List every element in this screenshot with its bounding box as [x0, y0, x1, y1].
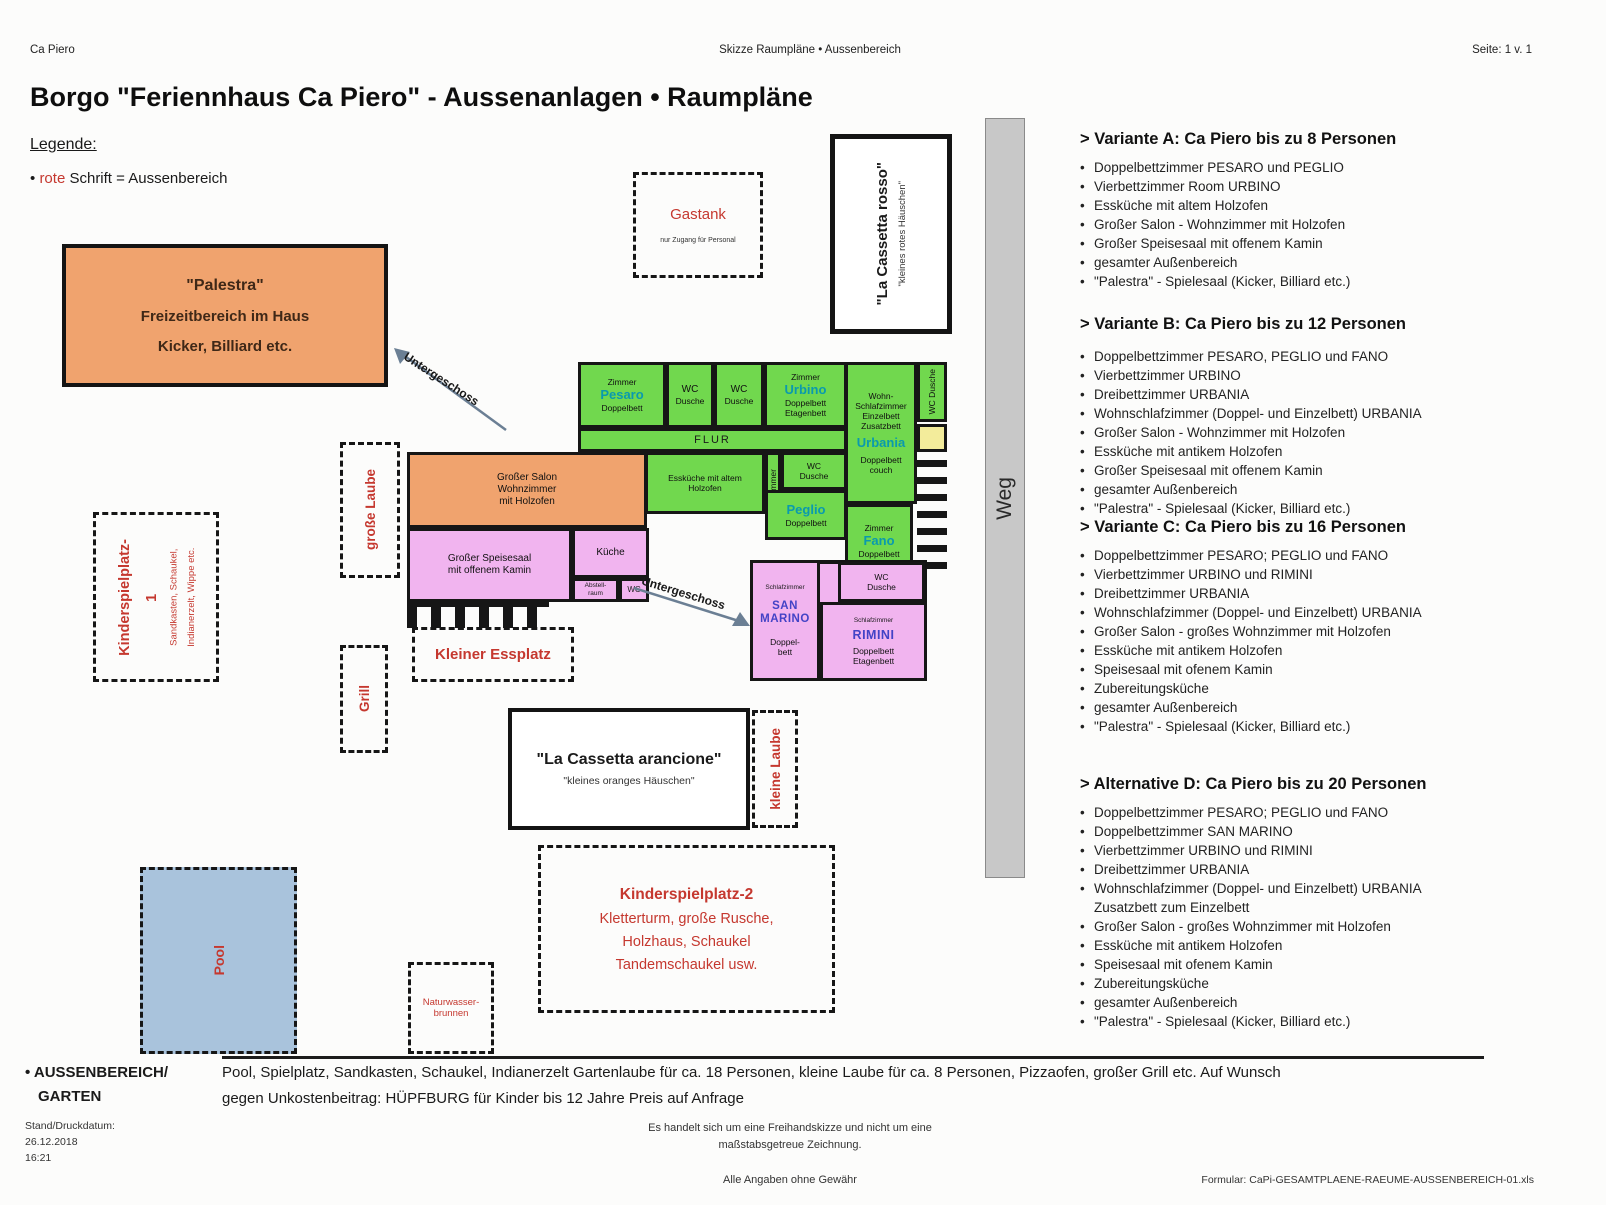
- formular-reference: Formular: CaPi-GESAMTPLAENE-RAEUME-AUSSE…: [1090, 1172, 1534, 1188]
- variant-item-text: Speisesaal mit ofenem Kamin: [1094, 955, 1273, 974]
- kinderspielplatz-2-line: Holzhaus, Schaukel: [622, 934, 750, 950]
- variant-list-item: • Großer Salon - großes Wohnzimmer mit H…: [1080, 622, 1590, 641]
- room-name: Urbino: [785, 382, 827, 397]
- variant-item-text: Speisesaal mit ofenem Kamin: [1094, 660, 1273, 679]
- disclaimer: Alle Angaben ohne Gewähr: [600, 1172, 980, 1188]
- print-date-block: Stand/Druckdatum: 26.12.2018 16:21: [25, 1118, 115, 1166]
- bullet: •: [1080, 1012, 1094, 1031]
- bed-label: Doppelbett: [785, 518, 826, 528]
- kinderspielplatz-2-title: Kinderspielplatz-2: [620, 886, 754, 904]
- kinderspielplatz-1-label: Kinderspielplatz- 1 Sandkasten, Schaukel…: [112, 539, 201, 656]
- kinderspielplatz-2-line: Kletterturm, große Rusche,: [599, 911, 773, 927]
- room-type-label: Zimmer: [791, 372, 820, 382]
- bullet: •: [1080, 480, 1094, 499]
- room-name: RIMINI: [853, 628, 895, 643]
- bullet: •: [1080, 717, 1094, 736]
- cassetta-rosso-title: "La Cassetta rosso": [874, 162, 891, 305]
- variant-item-text: Großer Salon - großes Wohnzimmer mit Hol…: [1094, 622, 1391, 641]
- brunnen-label: Naturwasser-: [423, 997, 480, 1008]
- variant-list-item: • Wohnschlafzimmer (Doppel- und Einzelbe…: [1080, 404, 1590, 423]
- dusche-label: Dusche: [867, 582, 896, 592]
- bullet: •: [1080, 234, 1094, 253]
- variant-item-text: gesamter Außenbereich: [1094, 993, 1237, 1012]
- variant-list-item: Zusatzbett zum Einzelbett: [1080, 898, 1590, 917]
- footer-rule: [222, 1056, 1484, 1059]
- variant-item-text: Doppelbettzimmer PESARO; PEGLIO und FANO: [1094, 803, 1388, 822]
- bullet: •: [1080, 860, 1094, 879]
- bullet: •: [1080, 955, 1094, 974]
- variant-a-title: > Variante A: Ca Piero bis zu 8 Personen: [1080, 130, 1590, 149]
- palestra-line2: Freizeitbereich im Haus: [141, 308, 309, 325]
- variant-list-item: • Vierbettzimmer URBINO und RIMINI: [1080, 565, 1590, 584]
- variant-list-item: • Doppelbettzimmer SAN MARINO: [1080, 822, 1590, 841]
- room-san-marino: Schlafzimmer SAN MARINO Doppel- bett: [750, 560, 820, 681]
- wc-label: WC: [731, 384, 748, 396]
- variant-item-text: Vierbettzimmer URBINO und RIMINI: [1094, 841, 1313, 860]
- bed-label: Doppel-: [770, 637, 800, 647]
- variant-list-item: • Dreibettzimmer URBANIA: [1080, 584, 1590, 603]
- brunnen-label: brunnen: [434, 1008, 469, 1019]
- flur-label: FLUR: [694, 434, 731, 447]
- room-kueche: Küche: [572, 528, 649, 578]
- bullet: •: [1080, 253, 1094, 272]
- variant-c-list: • Doppelbettzimmer PESARO; PEGLIO und FA…: [1080, 546, 1590, 736]
- room-type-label: Essküche mit altem: [668, 473, 742, 483]
- palestra-title: "Palestra": [186, 277, 263, 295]
- variant-list-item: • "Palestra" - Spielesaal (Kicker, Billi…: [1080, 272, 1590, 291]
- variant-list-item: • "Palestra" - Spielesaal (Kicker, Billi…: [1080, 717, 1590, 736]
- stairs-hatch: [917, 460, 947, 576]
- palestra-area: "Palestra" Freizeitbereich im Haus Kicke…: [62, 244, 388, 387]
- bullet: •: [1080, 603, 1094, 622]
- variant-item-text: Essküche mit antikem Holzofen: [1094, 641, 1282, 660]
- variant-item-text: Wohnschlafzimmer (Doppel- und Einzelbett…: [1094, 603, 1422, 622]
- bullet: •: [1080, 641, 1094, 660]
- variant-list-item: • gesamter Außenbereich: [1080, 253, 1590, 272]
- weg-label: Weg: [993, 477, 1017, 520]
- weg-path: Weg: [985, 118, 1025, 878]
- bed-label: Einzelbett: [862, 411, 899, 421]
- bullet: •: [1080, 196, 1094, 215]
- variant-item-text: Vierbettzimmer Room URBINO: [1094, 177, 1281, 196]
- variant-list-item: • Essküche mit antikem Holzofen: [1080, 936, 1590, 955]
- bullet: •: [1080, 974, 1094, 993]
- variant-list-item: • Doppelbettzimmer PESARO; PEGLIO und FA…: [1080, 546, 1590, 565]
- variant-item-text: Zubereitungsküche: [1094, 679, 1209, 698]
- bullet: •: [1080, 499, 1094, 518]
- bed-label: Doppelbett: [858, 549, 899, 559]
- bullet: •: [1080, 698, 1094, 717]
- room-type-label: Wohnzimmer: [498, 484, 557, 496]
- variant-list-item: • Doppelbettzimmer PESARO, PEGLIO und FA…: [1080, 347, 1590, 366]
- variant-item-text: Doppelbettzimmer PESARO und PEGLIO: [1094, 158, 1344, 177]
- room-wc-a: WC Dusche: [666, 362, 714, 428]
- variant-list-item: • Wohnschlafzimmer (Doppel- und Einzelbe…: [1080, 603, 1590, 622]
- bed-label: Etagenbett: [853, 656, 894, 666]
- variant-list-item: • gesamter Außenbereich: [1080, 993, 1590, 1012]
- room-type-label: mit offenem Kamin: [448, 565, 531, 577]
- room-wc-small: WC Dusche: [781, 452, 847, 490]
- variant-list-item: • Zubereitungsküche: [1080, 679, 1590, 698]
- legend-rest: Schrift = Aussenbereich: [69, 170, 227, 187]
- room-type-label: Abstell-: [585, 582, 607, 590]
- legend-line: • rote Schrift = Aussenbereich: [30, 170, 227, 187]
- dusche-label: Dusche: [676, 396, 705, 406]
- legend-red-word: rote: [39, 170, 65, 187]
- page-title: Borgo "Feriennhaus Ca Piero" - Aussenanl…: [30, 82, 813, 113]
- legend-heading: Legende:: [30, 136, 97, 154]
- kinderspielplatz-2-area: Kinderspielplatz-2 Kletterturm, große Ru…: [538, 845, 835, 1013]
- bullet: •: [1080, 841, 1094, 860]
- bullet: •: [1080, 272, 1094, 291]
- grosse-laube-area: große Laube: [340, 442, 400, 578]
- variant-item-text: Essküche mit altem Holzofen: [1094, 196, 1268, 215]
- room-wc-b: WC Dusche: [714, 362, 764, 428]
- variant-item-text: Zusatzbett zum Einzelbett: [1094, 898, 1249, 917]
- room-type-label: Schlafzimmer: [854, 617, 893, 625]
- variant-list-item: • Großer Speisesaal mit offenem Kamin: [1080, 234, 1590, 253]
- bed-label: Doppelbett: [785, 398, 826, 408]
- variant-item-text: gesamter Außenbereich: [1094, 253, 1237, 272]
- print-date-value: 26.12.2018: [25, 1134, 115, 1150]
- pool-label: Pool: [211, 945, 227, 975]
- bullet: •: [1080, 565, 1094, 584]
- bullet: •: [1080, 347, 1094, 366]
- bullet: •: [1080, 622, 1094, 641]
- room-type-label: Schlafzimmer: [765, 584, 804, 592]
- stairs-comb: [407, 602, 549, 628]
- room-type-label: Holzofen: [688, 483, 722, 493]
- kleine-laube-label: kleine Laube: [768, 728, 783, 810]
- variant-item-text: Doppelbettzimmer SAN MARINO: [1094, 822, 1293, 841]
- room-type-label: Großer Salon: [497, 472, 557, 484]
- room-type-label: mit Holzofen: [499, 496, 555, 508]
- variant-list-item: • Dreibettzimmer URBANIA: [1080, 385, 1590, 404]
- kinderspielplatz-1-sub: Sandkasten, Schaukel,: [165, 539, 183, 656]
- variant-list-item: • Essküche mit antikem Holzofen: [1080, 641, 1590, 660]
- bullet: [1080, 898, 1094, 917]
- bullet: •: [1080, 679, 1094, 698]
- bed-label: Zusatzbett: [861, 421, 901, 431]
- pool-area: Pool: [140, 867, 297, 1054]
- naturwasserbrunnen-area: Naturwasser- brunnen: [408, 962, 494, 1054]
- bullet: •: [1080, 385, 1094, 404]
- aussenbereich-desc-1: Pool, Spielplatz, Sandkasten, Schaukel, …: [222, 1064, 1512, 1081]
- bullet: •: [1080, 404, 1094, 423]
- variant-list-item: • Doppelbettzimmer PESARO und PEGLIO: [1080, 158, 1590, 177]
- variant-item-text: "Palestra" - Spielesaal (Kicker, Billiar…: [1094, 272, 1350, 291]
- variant-item-text: Großer Speisesaal mit offenem Kamin: [1094, 234, 1323, 253]
- cassetta-arancione-subtitle: "kleines oranges Häuschen": [563, 775, 694, 787]
- room-grosser-salon: Großer Salon Wohnzimmer mit Holzofen: [407, 452, 647, 528]
- room-urbino: Zimmer Urbino Doppelbett Etagenbett: [764, 362, 847, 428]
- variant-list-item: • Dreibettzimmer URBANIA: [1080, 860, 1590, 879]
- bullet: •: [1080, 423, 1094, 442]
- bed-label: bett: [778, 647, 792, 657]
- print-date-label: Stand/Druckdatum:: [25, 1118, 115, 1134]
- bullet: •: [1080, 215, 1094, 234]
- room-urbania: Wohn- Schlafzimmer Einzelbett Zusatzbett…: [845, 362, 917, 504]
- gastank-note: nur Zugang für Personal: [660, 237, 736, 244]
- header-page-number: Seite: 1 v. 1: [1390, 44, 1532, 56]
- bullet: •: [1080, 822, 1094, 841]
- variant-list-item: • Großer Speisesaal mit offenem Kamin: [1080, 461, 1590, 480]
- wc-label: WC Dusche: [927, 369, 937, 414]
- garten-label: GARTEN: [38, 1088, 101, 1105]
- cassetta-rosso-area: "La Cassetta rosso" "kleines rotes Häusc…: [830, 134, 952, 334]
- plan-yellow-cell: [917, 424, 947, 452]
- room-abstellraum: Abstell- raum: [572, 578, 619, 602]
- alternative-d-list: • Doppelbettzimmer PESARO; PEGLIO und FA…: [1080, 803, 1590, 1031]
- room-pesaro: Zimmer Pesaro Doppelbett: [578, 362, 666, 428]
- variant-list-item: • Wohnschlafzimmer (Doppel- und Einzelbe…: [1080, 879, 1590, 898]
- room-name: Pesaro: [600, 387, 643, 402]
- variant-list-item: • Speisesaal mit ofenem Kamin: [1080, 660, 1590, 679]
- variant-item-text: Vierbettzimmer URBINO: [1094, 366, 1241, 385]
- kinderspielplatz-1-number: 1: [138, 539, 165, 656]
- bed-label: Doppelbett couch: [848, 455, 914, 475]
- gastank-area: Gastank nur Zugang für Personal: [633, 172, 763, 278]
- dusche-label: Dusche: [725, 396, 754, 406]
- variant-a-section: > Variante A: Ca Piero bis zu 8 Personen…: [1080, 130, 1590, 291]
- dusche-label: Dusche: [800, 471, 829, 481]
- room-rimini: Schlafzimmer RIMINI Doppelbett Etagenbet…: [820, 602, 927, 681]
- bullet: •: [1080, 917, 1094, 936]
- bullet: •: [1080, 660, 1094, 679]
- room-name: SAN: [772, 600, 798, 614]
- variant-list-item: • Großer Salon - Wohnzimmer mit Holzofen: [1080, 215, 1590, 234]
- alternative-d-section: > Alternative D: Ca Piero bis zu 20 Pers…: [1080, 775, 1590, 1031]
- cassetta-arancione-area: "La Cassetta arancione" "kleines oranges…: [508, 708, 750, 830]
- kinderspielplatz-1-title: Kinderspielplatz-: [112, 539, 139, 656]
- variant-item-text: Dreibettzimmer URBANIA: [1094, 385, 1249, 404]
- room-wc-pink: WC Dusche: [838, 562, 925, 602]
- variant-a-list: • Doppelbettzimmer PESARO und PEGLIO • V…: [1080, 158, 1590, 291]
- bullet: •: [1080, 461, 1094, 480]
- room-type-label: Wohn-: [869, 391, 894, 401]
- room-name: MARINO: [760, 613, 810, 627]
- room-name: Peglio: [786, 502, 825, 517]
- variant-b-section: > Variante B: Ca Piero bis zu 12 Persone…: [1080, 315, 1590, 518]
- variant-item-text: Essküche mit antikem Holzofen: [1094, 936, 1282, 955]
- kleiner-essplatz-label: Kleiner Essplatz: [435, 646, 551, 663]
- room-wc-vertical: WC Dusche: [917, 362, 947, 422]
- room-type-label: Großer Speisesaal: [448, 553, 531, 565]
- print-time-value: 16:21: [25, 1150, 115, 1166]
- room-type-label: Zimmer: [608, 377, 637, 387]
- room-name: Küche: [596, 547, 624, 559]
- document-page: Ca Piero Skizze Raumpläne • Aussenbereic…: [0, 0, 1606, 1205]
- variant-list-item: • "Palestra" - Spielesaal (Kicker, Billi…: [1080, 1012, 1590, 1031]
- variant-list-item: • Vierbettzimmer Room URBINO: [1080, 177, 1590, 196]
- header-center: Skizze Raumpläne • Aussenbereich: [550, 44, 1070, 56]
- bullet: •: [1080, 366, 1094, 385]
- wc-label: WC: [807, 461, 821, 471]
- variant-list-item: • Großer Salon - Wohnzimmer mit Holzofen: [1080, 423, 1590, 442]
- grosse-laube-label: große Laube: [363, 469, 378, 550]
- bullet: •: [1080, 936, 1094, 955]
- kleine-laube-area: kleine Laube: [752, 710, 798, 828]
- variant-list-item: • gesamter Außenbereich: [1080, 698, 1590, 717]
- variant-list-item: • Essküche mit antikem Holzofen: [1080, 442, 1590, 461]
- palestra-line3: Kicker, Billiard etc.: [158, 338, 292, 355]
- grill-area: Grill: [340, 645, 388, 753]
- bullet: •: [1080, 442, 1094, 461]
- gastank-title: Gastank: [670, 206, 726, 223]
- wc-label: WC: [874, 572, 888, 582]
- variant-item-text: Großer Salon - Wohnzimmer mit Holzofen: [1094, 423, 1345, 442]
- variant-list-item: • Doppelbettzimmer PESARO; PEGLIO und FA…: [1080, 803, 1590, 822]
- wc-label: WC: [682, 384, 699, 396]
- aussenbereich-label: • AUSSENBEREICH/: [25, 1064, 168, 1081]
- variant-item-text: gesamter Außenbereich: [1094, 480, 1237, 499]
- variant-item-text: "Palestra" - Spielesaal (Kicker, Billiar…: [1094, 717, 1350, 736]
- bullet: •: [1080, 158, 1094, 177]
- variant-b-title: > Variante B: Ca Piero bis zu 12 Persone…: [1080, 315, 1590, 334]
- variant-item-text: gesamter Außenbereich: [1094, 698, 1237, 717]
- variant-item-text: Doppelbettzimmer PESARO; PEGLIO und FANO: [1094, 546, 1388, 565]
- variant-item-text: "Palestra" - Spielesaal (Kicker, Billiar…: [1094, 499, 1350, 518]
- room-peglio: Peglio Doppelbett: [765, 490, 847, 540]
- variant-c-section: > Variante C: Ca Piero bis zu 16 Persone…: [1080, 518, 1590, 736]
- variant-item-text: Zubereitungsküche: [1094, 974, 1209, 993]
- kinderspielplatz-2-line: Tandemschaukel usw.: [616, 957, 758, 973]
- variant-list-item: • Essküche mit altem Holzofen: [1080, 196, 1590, 215]
- variant-item-text: Wohnschlafzimmer (Doppel- und Einzelbett…: [1094, 879, 1422, 898]
- freehand-note-2: maßstabsgetreue Zeichnung.: [600, 1137, 980, 1153]
- variant-item-text: Essküche mit antikem Holzofen: [1094, 442, 1282, 461]
- room-name: Urbania: [857, 435, 905, 450]
- grill-label: Grill: [357, 685, 372, 712]
- bed-label: Doppelbett: [853, 646, 894, 656]
- bullet: •: [1080, 803, 1094, 822]
- bullet: •: [1080, 177, 1094, 196]
- bed-label: Doppelbett: [601, 403, 642, 413]
- room-type-label: Zimmer: [865, 523, 894, 533]
- legend-bullet: •: [30, 170, 35, 187]
- room-type-label: raum: [588, 590, 603, 598]
- aussenbereich-desc-2: gegen Unkostenbeitrag: HÜPFBURG für Kind…: [222, 1090, 1512, 1107]
- variant-item-text: "Palestra" - Spielesaal (Kicker, Billiar…: [1094, 1012, 1350, 1031]
- variant-list-item: • Zubereitungsküche: [1080, 974, 1590, 993]
- bed-label: Etagenbett: [785, 408, 826, 418]
- room-esskueche: Essküche mit altem Holzofen: [645, 452, 765, 514]
- variant-list-item: • "Palestra" - Spielesaal (Kicker, Billi…: [1080, 499, 1590, 518]
- variant-item-text: Großer Salon - Wohnzimmer mit Holzofen: [1094, 215, 1345, 234]
- variant-list-item: • Vierbettzimmer URBINO: [1080, 366, 1590, 385]
- variant-list-item: • Großer Salon - großes Wohnzimmer mit H…: [1080, 917, 1590, 936]
- variant-item-text: Großer Salon - großes Wohnzimmer mit Hol…: [1094, 917, 1391, 936]
- variant-item-text: Wohnschlafzimmer (Doppel- und Einzelbett…: [1094, 404, 1422, 423]
- alternative-d-title: > Alternative D: Ca Piero bis zu 20 Pers…: [1080, 775, 1590, 794]
- variant-list-item: • Vierbettzimmer URBINO und RIMINI: [1080, 841, 1590, 860]
- cassetta-rosso-subtitle: "kleines rotes Häuschen": [897, 181, 908, 287]
- bullet: •: [1080, 584, 1094, 603]
- kinderspielplatz-1-area: Kinderspielplatz- 1 Sandkasten, Schaukel…: [93, 512, 219, 682]
- room-speisesaal: Großer Speisesaal mit offenem Kamin: [407, 528, 572, 602]
- variant-b-list: • Doppelbettzimmer PESARO, PEGLIO und FA…: [1080, 347, 1590, 518]
- variant-list-item: • Speisesaal mit ofenem Kamin: [1080, 955, 1590, 974]
- variant-item-text: Dreibettzimmer URBANIA: [1094, 584, 1249, 603]
- variant-item-text: Dreibettzimmer URBANIA: [1094, 860, 1249, 879]
- room-type-label: Schlafzimmer: [855, 401, 906, 411]
- cassetta-arancione-title: "La Cassetta arancione": [536, 751, 721, 769]
- header-left: Ca Piero: [30, 44, 75, 56]
- bullet: •: [1080, 993, 1094, 1012]
- room-name: Fano: [863, 533, 894, 548]
- variant-item-text: Großer Speisesaal mit offenem Kamin: [1094, 461, 1323, 480]
- bullet: •: [1080, 879, 1094, 898]
- variant-c-title: > Variante C: Ca Piero bis zu 16 Persone…: [1080, 518, 1590, 537]
- kinderspielplatz-1-sub: Indianerzelt, Wippe etc.: [183, 539, 201, 656]
- variant-item-text: Doppelbettzimmer PESARO, PEGLIO und FANO: [1094, 347, 1388, 366]
- variant-list-item: • gesamter Außenbereich: [1080, 480, 1590, 499]
- bullet: •: [1080, 546, 1094, 565]
- freehand-note-1: Es handelt sich um eine Freihandskizze u…: [600, 1120, 980, 1136]
- variant-item-text: Vierbettzimmer URBINO und RIMINI: [1094, 565, 1313, 584]
- corridor-flur: FLUR: [578, 428, 847, 452]
- kleiner-essplatz-area: Kleiner Essplatz: [412, 627, 574, 682]
